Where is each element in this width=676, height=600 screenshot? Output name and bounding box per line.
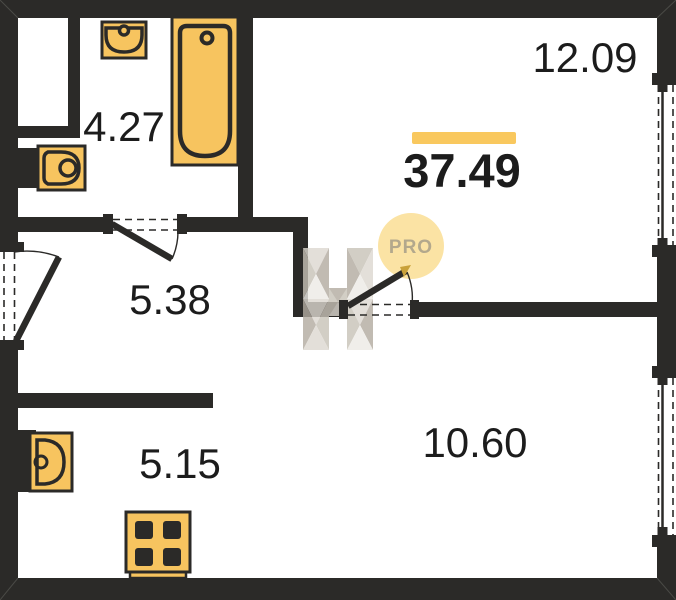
door-jamb — [0, 340, 24, 350]
toilet-fixture — [38, 146, 85, 190]
label-bedroom-area: 10.60 — [422, 419, 527, 466]
wall-segment — [68, 18, 80, 138]
wall-segment — [0, 0, 18, 252]
bathtub-fixture — [172, 17, 238, 165]
wall-segment — [657, 257, 676, 366]
window-tab — [658, 527, 668, 536]
label-total-area: 37.49 — [403, 144, 521, 197]
door-swing-arc — [14, 251, 59, 257]
label-living-area: 12.09 — [532, 34, 637, 81]
burner — [163, 521, 181, 539]
entrance-door — [0, 242, 59, 350]
kitchen-sink-fixture — [30, 433, 72, 491]
door-jamb — [103, 214, 113, 234]
door-leaf — [16, 257, 59, 341]
window-tab — [658, 238, 668, 247]
total-area-accent-bar — [412, 132, 516, 144]
door-jamb — [410, 300, 419, 319]
wall-segment — [0, 0, 676, 18]
burner — [163, 548, 181, 566]
label-kitchen-area: 5.15 — [139, 440, 221, 487]
window-tab — [658, 83, 668, 92]
floor-plan: PRO — [0, 0, 676, 600]
washbasin-fixture — [102, 22, 146, 58]
floor-plan-page: PRO — [0, 0, 676, 600]
window-tab — [658, 376, 668, 385]
wall-segment — [657, 0, 676, 73]
wall-segment — [18, 126, 80, 138]
wall-segment — [0, 340, 18, 600]
door-jamb — [339, 300, 348, 319]
window-cap — [652, 535, 676, 547]
wall-segment — [412, 302, 657, 317]
burner — [135, 521, 153, 539]
door-jamb — [177, 214, 187, 234]
wall-segment — [238, 18, 253, 232]
label-bathroom-area: 4.27 — [83, 103, 165, 150]
door-swing-arc — [172, 232, 178, 259]
wall-segment — [18, 393, 213, 408]
pro-badge-label: PRO — [389, 237, 433, 258]
wall-segment — [0, 578, 676, 600]
stove-fixture — [126, 512, 190, 578]
door-jamb — [0, 242, 24, 252]
bathroom-door — [103, 214, 187, 259]
window-bedroom — [652, 366, 676, 547]
window-living-room — [652, 73, 676, 257]
pro-badge: PRO — [378, 213, 444, 279]
wall-segment — [18, 217, 112, 232]
label-hall-area: 5.38 — [129, 276, 211, 323]
burner — [135, 548, 153, 566]
